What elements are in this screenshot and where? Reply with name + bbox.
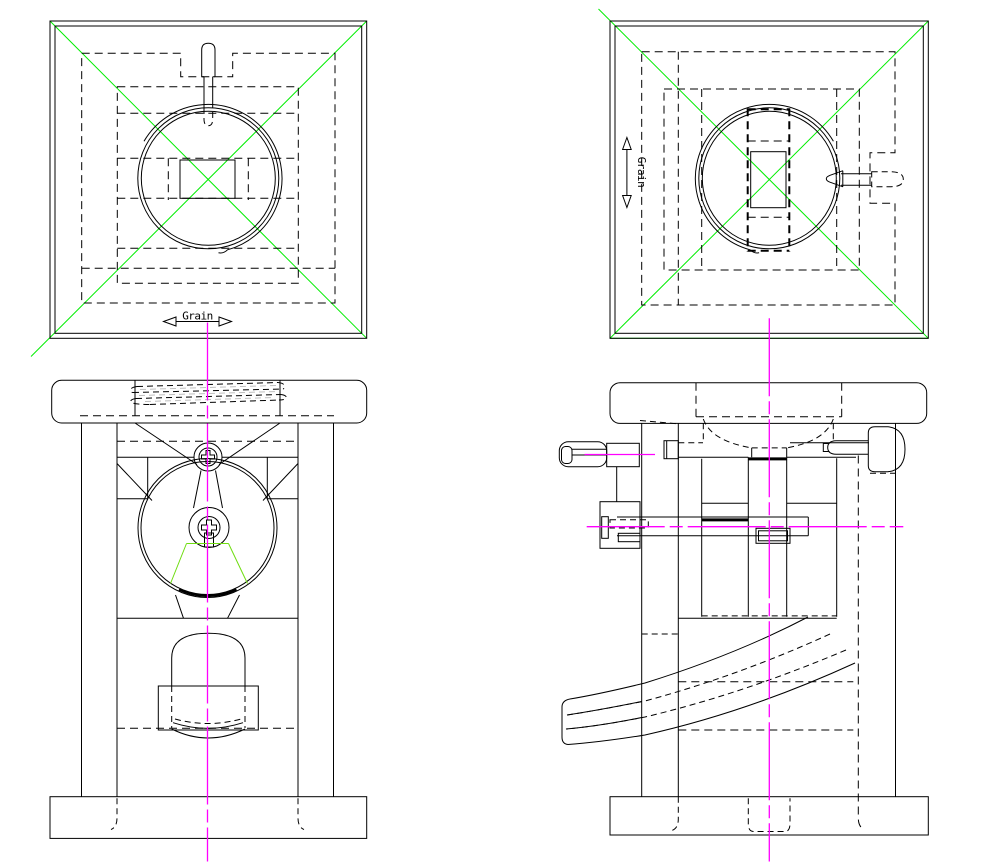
handle-folded-right [826, 171, 903, 187]
funnel-highlight-lines [171, 544, 248, 584]
hidden-step-outline [664, 89, 859, 270]
top-board [610, 383, 927, 424]
handle-pivot-hidden [204, 108, 213, 126]
grain-label-text: Grain [182, 310, 213, 323]
bracket-boss [618, 533, 640, 541]
cad-drawing-canvas: Grain Gra [0, 0, 994, 867]
chute-tip [562, 699, 570, 745]
crank-knob-right [823, 427, 905, 472]
drawing-root: Grain Gra [31, 9, 928, 862]
hidden-line [117, 113, 298, 248]
legs [642, 423, 896, 796]
top-board [52, 380, 367, 423]
handle-grip-hidden [872, 172, 904, 187]
hopper-ring-inner [702, 111, 836, 245]
discharge-chute [562, 617, 855, 745]
grain-arrowhead-right [219, 317, 232, 326]
centerlines [208, 318, 904, 861]
hopper-ring-outer [138, 108, 279, 249]
bracket-bolt-head [602, 517, 609, 539]
crank-hook-right [278, 383, 286, 401]
rail-lug [664, 441, 678, 459]
view-top-left-top-view: Grain [31, 21, 367, 357]
leg-back-hidden-edge [858, 456, 864, 830]
chute-top [570, 617, 808, 699]
hub [189, 508, 229, 548]
hopper-rim-arc [144, 104, 282, 253]
hopper-ring-inner [141, 111, 275, 245]
handle-pivot-tab [826, 171, 843, 187]
hidden-posts [703, 423, 833, 441]
folded-crank-phantom [139, 386, 278, 402]
chute-inner-hidden [567, 634, 830, 715]
grain-arrowhead-down [623, 196, 632, 208]
handle-stem [202, 77, 215, 108]
handle-grip [202, 43, 215, 76]
hidden-line [117, 158, 298, 198]
hopper-ring-outer [699, 108, 840, 249]
base-plate [50, 797, 367, 839]
chute-bottom [568, 663, 855, 745]
catch-cup-hidden-sides [172, 686, 245, 728]
view-front [50, 380, 367, 838]
chute-inner-visible [566, 702, 642, 730]
grain-arrowhead-left [164, 317, 177, 326]
catch-cup-dome [172, 633, 245, 686]
view-side [559, 383, 928, 835]
grain-arrowhead-up [623, 138, 632, 150]
grain-direction-label: Grain [164, 310, 232, 327]
crank-grip-cap [562, 447, 573, 464]
grain-label-text: Grain [635, 157, 648, 188]
crank-phantom-line [139, 386, 278, 402]
inner-funnel-highlight [171, 544, 248, 584]
knob-outline [868, 427, 905, 472]
leg-footprint-hidden [672, 797, 678, 831]
handle-stem [841, 174, 872, 185]
view-top-right-bottom-view: Grain [599, 9, 929, 338]
cad-drawing-page: Grain Gra [0, 0, 994, 867]
crank-assembly-left [559, 442, 648, 549]
compartment-hidden [678, 682, 853, 730]
center-slot [751, 152, 786, 208]
grain-direction-label: Grain [623, 138, 648, 208]
